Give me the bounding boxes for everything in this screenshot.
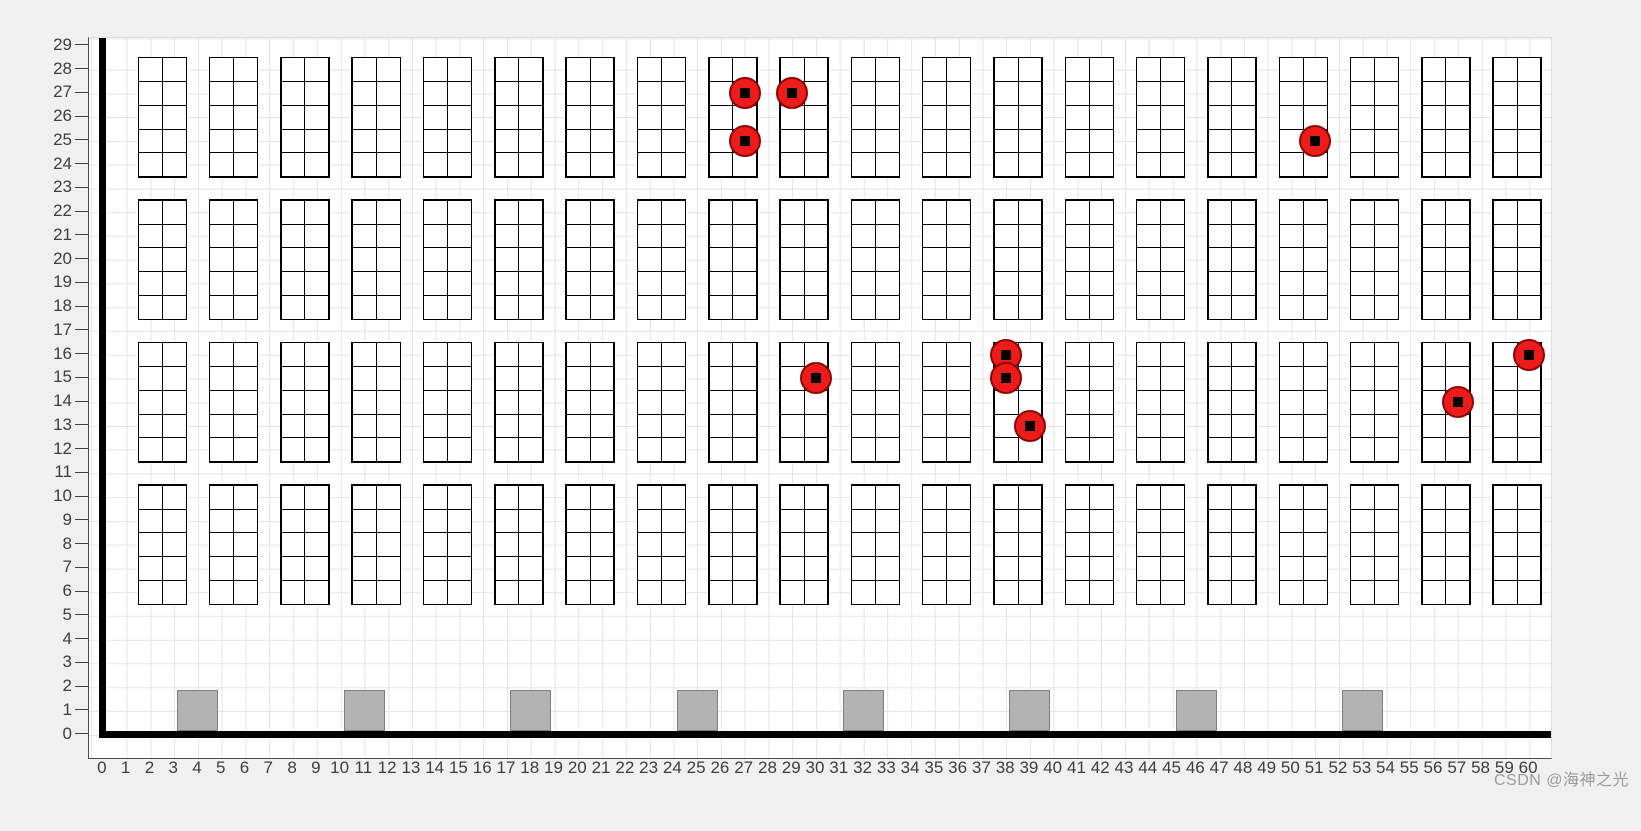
rack-cell (590, 57, 615, 82)
rack-cell (1303, 342, 1328, 367)
rack-cell (946, 295, 971, 320)
rack-cell (804, 509, 829, 534)
rack-cell (1136, 200, 1161, 225)
rack-cell (1065, 81, 1090, 106)
rack-cell (566, 414, 591, 439)
rack-cell (590, 129, 615, 154)
rack-cell (423, 390, 448, 415)
rack-cell (946, 57, 971, 82)
storage-rack (1350, 199, 1400, 320)
rack-cell (1279, 81, 1304, 106)
rack-cell (661, 105, 686, 130)
y-tick (75, 519, 88, 520)
rack-cell (1374, 247, 1399, 272)
rack-cell (1374, 200, 1399, 225)
storage-rack (922, 342, 972, 463)
rack-cell (518, 342, 543, 367)
rack-cell (875, 200, 900, 225)
rack-cell (994, 532, 1019, 557)
rack-cell (1279, 247, 1304, 272)
storage-rack (1207, 199, 1257, 320)
rack-cell (946, 580, 971, 605)
storage-rack (637, 484, 687, 605)
marker-center-dot (740, 136, 750, 146)
rack-cell (1231, 81, 1256, 106)
rack-cell (1208, 105, 1233, 130)
figure: 0123456789101112131415161718192021222324… (0, 0, 1641, 831)
y-tick-label: 3 (26, 653, 72, 671)
rack-cell (922, 390, 947, 415)
rack-cell (1065, 437, 1090, 462)
rack-cell (138, 152, 163, 177)
rack-cell (1445, 580, 1470, 605)
rack-cell (1279, 295, 1304, 320)
rack-cell (1208, 129, 1233, 154)
rack-cell (281, 271, 306, 296)
rack-cell (1089, 224, 1114, 249)
rack-cell (709, 200, 734, 225)
occupied-slot-marker (1014, 410, 1046, 442)
rack-cell (1231, 271, 1256, 296)
rack-cell (1089, 200, 1114, 225)
rack-cell (661, 414, 686, 439)
rack-cell (1493, 200, 1518, 225)
rack-cell (447, 247, 472, 272)
rack-cell (1445, 342, 1470, 367)
rack-cell (162, 580, 187, 605)
rack-cell (1208, 295, 1233, 320)
rack-cell (138, 342, 163, 367)
rack-cell (233, 509, 258, 534)
rack-cell (1231, 390, 1256, 415)
rack-cell (1208, 271, 1233, 296)
rack-cell (233, 414, 258, 439)
rack-cell (423, 295, 448, 320)
rack-cell (780, 509, 805, 534)
rack-cell (732, 437, 757, 462)
rack-cell (637, 532, 662, 557)
rack-cell (1374, 295, 1399, 320)
rack-cell (661, 224, 686, 249)
rack-cell (590, 81, 615, 106)
storage-rack (423, 484, 473, 605)
rack-cell (1422, 152, 1447, 177)
rack-cell (1089, 295, 1114, 320)
storage-rack (1350, 484, 1400, 605)
rack-cell (566, 437, 591, 462)
rack-cell (518, 366, 543, 391)
y-tick (75, 496, 88, 497)
rack-cell (590, 414, 615, 439)
storage-rack (351, 199, 401, 320)
rack-cell (1422, 556, 1447, 581)
rack-cell (209, 485, 234, 510)
rack-cell (851, 152, 876, 177)
rack-cell (281, 437, 306, 462)
rack-cell (1065, 532, 1090, 557)
rack-cell (1517, 200, 1542, 225)
rack-cell (304, 556, 329, 581)
rack-cell (946, 532, 971, 557)
rack-cell (637, 295, 662, 320)
rack-cell (138, 129, 163, 154)
rack-cell (661, 271, 686, 296)
rack-cell (376, 271, 401, 296)
rack-cell (304, 105, 329, 130)
rack-cell (304, 247, 329, 272)
rack-cell (138, 247, 163, 272)
rack-cell (304, 390, 329, 415)
y-tick (75, 543, 88, 544)
rack-cell (851, 437, 876, 462)
rack-cell (780, 152, 805, 177)
y-tick (75, 234, 88, 235)
rack-cell (209, 532, 234, 557)
rack-cell (352, 295, 377, 320)
y-tick (75, 258, 88, 259)
rack-cell (875, 509, 900, 534)
rack-cell (376, 342, 401, 367)
storage-rack (1421, 57, 1471, 178)
rack-cell (1303, 271, 1328, 296)
rack-cell (994, 485, 1019, 510)
rack-cell (423, 556, 448, 581)
rack-cell (352, 129, 377, 154)
rack-cell (1350, 580, 1375, 605)
rack-cell (209, 271, 234, 296)
rack-cell (566, 152, 591, 177)
rack-cell (1445, 509, 1470, 534)
rack-cell (304, 57, 329, 82)
storage-rack (1065, 342, 1115, 463)
rack-cell (1517, 437, 1542, 462)
rack-cell (1493, 437, 1518, 462)
rack-cell (376, 532, 401, 557)
rack-cell (875, 556, 900, 581)
y-tick (75, 567, 88, 568)
rack-cell (994, 556, 1019, 581)
rack-cell (804, 580, 829, 605)
storage-rack (1065, 57, 1115, 178)
rack-cell (304, 129, 329, 154)
rack-cell (423, 271, 448, 296)
rack-cell (518, 390, 543, 415)
rack-cell (138, 580, 163, 605)
rack-cell (1160, 509, 1185, 534)
rack-cell (1493, 152, 1518, 177)
y-tick (75, 662, 88, 663)
rack-cell (1160, 580, 1185, 605)
rack-cell (1350, 509, 1375, 534)
rack-cell (661, 580, 686, 605)
rack-cell (1350, 247, 1375, 272)
rack-cell (281, 342, 306, 367)
rack-cell (1350, 200, 1375, 225)
rack-cell (447, 57, 472, 82)
rack-cell (1136, 390, 1161, 415)
rack-cell (304, 342, 329, 367)
rack-cell (732, 342, 757, 367)
rack-cell (1160, 129, 1185, 154)
rack-cell (1445, 105, 1470, 130)
rack-cell (304, 366, 329, 391)
rack-cell (138, 57, 163, 82)
rack-cell (732, 224, 757, 249)
rack-cell (495, 556, 520, 581)
rack-cell (1517, 57, 1542, 82)
y-tick (75, 638, 88, 639)
y-tick-label: 6 (26, 582, 72, 600)
storage-rack (851, 57, 901, 178)
rack-cell (946, 342, 971, 367)
rack-cell (1231, 342, 1256, 367)
rack-cell (732, 556, 757, 581)
rack-cell (304, 295, 329, 320)
storage-rack (280, 342, 330, 463)
rack-cell (709, 247, 734, 272)
rack-cell (209, 556, 234, 581)
rack-cell (1018, 485, 1043, 510)
occupied-slot-marker (1299, 125, 1331, 157)
storage-rack (1492, 57, 1542, 178)
rack-cell (423, 224, 448, 249)
rack-cell (209, 81, 234, 106)
rack-cell (566, 509, 591, 534)
rack-cell (1350, 81, 1375, 106)
storage-rack (779, 342, 829, 463)
storage-rack (138, 199, 188, 320)
rack-cell (209, 247, 234, 272)
storage-rack (494, 57, 544, 178)
storage-rack (922, 57, 972, 178)
rack-cell (1279, 366, 1304, 391)
rack-cell (922, 271, 947, 296)
rack-cell (566, 295, 591, 320)
rack-cell (1089, 105, 1114, 130)
rack-cell (352, 271, 377, 296)
rack-cell (875, 271, 900, 296)
rack-cell (1136, 532, 1161, 557)
rack-cell (162, 200, 187, 225)
rack-cell (994, 224, 1019, 249)
rack-cell (495, 532, 520, 557)
rack-cell (804, 437, 829, 462)
rack-cell (1350, 556, 1375, 581)
rack-cell (1160, 200, 1185, 225)
rack-cell (1208, 224, 1233, 249)
storage-rack (138, 57, 188, 178)
rack-cell (661, 247, 686, 272)
storage-rack (565, 57, 615, 178)
rack-cell (661, 81, 686, 106)
rack-cell (209, 129, 234, 154)
rack-cell (495, 295, 520, 320)
storage-rack (280, 57, 330, 178)
y-tick (75, 163, 88, 164)
rack-cell (1445, 295, 1470, 320)
rack-cell (1303, 81, 1328, 106)
rack-cell (637, 342, 662, 367)
rack-cell (566, 366, 591, 391)
rack-cell (709, 437, 734, 462)
y-tick-label: 1 (26, 701, 72, 719)
rack-cell (732, 390, 757, 415)
y-tick (75, 353, 88, 354)
rack-cell (376, 556, 401, 581)
storage-rack (209, 342, 259, 463)
rack-cell (1350, 342, 1375, 367)
rack-cell (946, 200, 971, 225)
rack-cell (1279, 200, 1304, 225)
rack-cell (1445, 200, 1470, 225)
rack-cell (1279, 342, 1304, 367)
y-tick (75, 709, 88, 710)
rack-cell (1160, 57, 1185, 82)
dock-station (1009, 690, 1050, 731)
rack-cell (875, 129, 900, 154)
rack-cell (709, 295, 734, 320)
y-tick (75, 92, 88, 93)
rack-cell (423, 580, 448, 605)
rack-cell (209, 200, 234, 225)
rack-cell (637, 152, 662, 177)
rack-cell (1018, 129, 1043, 154)
y-tick-label: 20 (26, 250, 72, 268)
storage-rack (922, 199, 972, 320)
rack-cell (138, 81, 163, 106)
storage-rack (1207, 57, 1257, 178)
rack-cell (875, 81, 900, 106)
storage-rack (993, 484, 1043, 605)
rack-cell (1065, 57, 1090, 82)
storage-rack (209, 57, 259, 178)
storage-rack (779, 199, 829, 320)
rack-cell (590, 105, 615, 130)
rack-cell (162, 57, 187, 82)
rack-cell (1208, 556, 1233, 581)
rack-cell (661, 342, 686, 367)
rack-cell (1493, 366, 1518, 391)
rack-cell (1160, 152, 1185, 177)
storage-rack (565, 484, 615, 605)
y-tick-label: 29 (26, 36, 72, 54)
rack-cell (804, 532, 829, 557)
rack-cell (1018, 295, 1043, 320)
storage-rack (138, 484, 188, 605)
rack-cell (566, 390, 591, 415)
rack-cell (1136, 509, 1161, 534)
rack-cell (1517, 81, 1542, 106)
rack-cell (994, 200, 1019, 225)
rack-cell (661, 200, 686, 225)
rack-cell (447, 366, 472, 391)
rack-cell (281, 390, 306, 415)
marker-center-dot (1001, 350, 1011, 360)
rack-cell (304, 224, 329, 249)
rack-cell (1018, 152, 1043, 177)
rack-cell (1018, 200, 1043, 225)
rack-cell (851, 366, 876, 391)
rack-cell (922, 152, 947, 177)
storage-rack (1279, 199, 1329, 320)
rack-cell (352, 81, 377, 106)
rack-cell (423, 105, 448, 130)
y-tick-label: 11 (26, 463, 72, 481)
rack-cell (352, 437, 377, 462)
rack-cell (447, 509, 472, 534)
y-tick-label: 7 (26, 558, 72, 576)
rack-cell (1303, 532, 1328, 557)
rack-cell (495, 200, 520, 225)
rack-cell (1018, 57, 1043, 82)
rack-cell (637, 437, 662, 462)
rack-cell (1493, 105, 1518, 130)
rack-cell (851, 509, 876, 534)
rack-cell (922, 295, 947, 320)
rack-cell (851, 129, 876, 154)
rack-cell (804, 152, 829, 177)
rack-cell (1303, 295, 1328, 320)
rack-cell (922, 105, 947, 130)
y-tick (75, 68, 88, 69)
rack-cell (1445, 532, 1470, 557)
rack-cell (661, 485, 686, 510)
rack-cell (1350, 366, 1375, 391)
rack-cell (209, 580, 234, 605)
rack-cell (423, 532, 448, 557)
rack-cell (1089, 437, 1114, 462)
storage-rack (1492, 199, 1542, 320)
rack-cell (661, 390, 686, 415)
rack-cell (518, 556, 543, 581)
rack-cell (138, 556, 163, 581)
rack-cell (1445, 152, 1470, 177)
rack-cell (376, 366, 401, 391)
rack-cell (851, 105, 876, 130)
rack-cell (1422, 129, 1447, 154)
rack-cell (1018, 532, 1043, 557)
rack-cell (804, 200, 829, 225)
rack-cell (732, 366, 757, 391)
rack-cell (1018, 509, 1043, 534)
rack-cell (1089, 247, 1114, 272)
rack-cell (875, 105, 900, 130)
rack-cell (1493, 390, 1518, 415)
rack-cell (851, 580, 876, 605)
rack-cell (447, 129, 472, 154)
rack-cell (518, 414, 543, 439)
y-tick (75, 472, 88, 473)
storage-rack (851, 484, 901, 605)
rack-cell (423, 414, 448, 439)
rack-cell (281, 152, 306, 177)
rack-cell (566, 247, 591, 272)
rack-cell (851, 414, 876, 439)
rack-cell (376, 390, 401, 415)
rack-cell (233, 556, 258, 581)
rack-cell (1374, 105, 1399, 130)
rack-cell (1517, 129, 1542, 154)
rack-cell (1231, 509, 1256, 534)
rack-cell (233, 342, 258, 367)
rack-cell (352, 556, 377, 581)
rack-cell (1065, 247, 1090, 272)
rack-cell (1160, 105, 1185, 130)
rack-cell (946, 437, 971, 462)
rack-cell (376, 295, 401, 320)
storage-rack (494, 199, 544, 320)
rack-cell (804, 485, 829, 510)
